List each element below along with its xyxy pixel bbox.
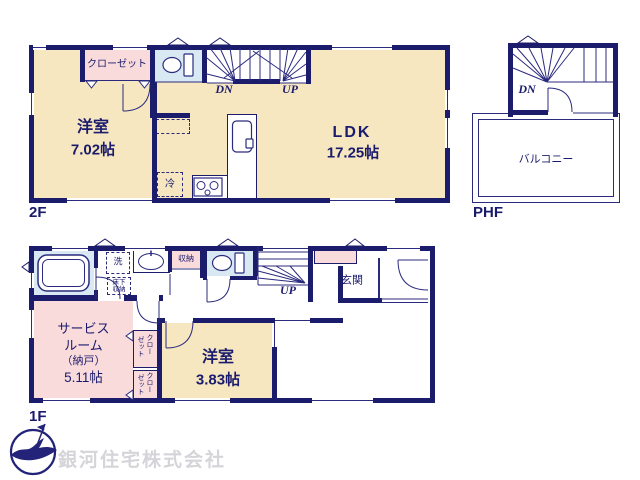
- wall: [508, 110, 548, 115]
- room-label-yoshitsu-1f: 洋室: [202, 350, 234, 366]
- service-room-label: サービス ルーム （納戸） 5.11帖: [34, 320, 133, 386]
- wall: [80, 45, 85, 82]
- window: [275, 318, 310, 323]
- window: [312, 398, 373, 403]
- wall: [168, 246, 172, 272]
- company-logo-icon: [11, 424, 57, 474]
- company-watermark: 銀河住宅株式会社: [58, 445, 226, 472]
- balcony-label: バルコニー: [519, 155, 574, 166]
- closet-lower-label-a: クロー: [146, 372, 153, 393]
- fridge-label: 冷: [165, 180, 175, 190]
- window: [29, 273, 34, 288]
- closet-lower-label-b: ゼット: [137, 374, 144, 395]
- room-toilet-1f: [207, 251, 253, 276]
- wall: [29, 45, 34, 203]
- shoe-cabinet: [314, 249, 357, 264]
- wall: [159, 295, 163, 301]
- stairs-up-1f: UP: [280, 284, 296, 296]
- wall: [508, 43, 618, 48]
- service-line3: （納戸）: [34, 354, 133, 369]
- window: [263, 246, 308, 251]
- wall: [508, 43, 513, 117]
- wall: [338, 298, 382, 303]
- entrance-label: 玄関: [341, 276, 363, 287]
- underfloor-line2: 収納: [107, 286, 131, 293]
- window: [113, 45, 147, 50]
- floor-label-phf: PHF: [473, 205, 503, 220]
- window: [29, 93, 34, 115]
- wall: [203, 276, 207, 280]
- wall: [233, 79, 280, 84]
- window: [175, 398, 230, 403]
- wall: [202, 45, 207, 83]
- room-label-closet-2f: クローゼット: [87, 60, 147, 70]
- underfloor-label: 床下 収納: [107, 279, 131, 293]
- window: [272, 323, 277, 347]
- service-line1: サービス: [34, 320, 133, 337]
- room-bath: [34, 251, 94, 295]
- underfloor-line1: 床下: [107, 279, 131, 286]
- window: [125, 246, 165, 251]
- room-toilet-2f: [155, 50, 202, 82]
- closet-upper-label-b: ゼット: [137, 336, 144, 357]
- wall: [29, 246, 435, 251]
- window: [52, 246, 88, 251]
- room-size-yoshitsu-1f: 3.83帖: [196, 373, 240, 388]
- window: [330, 198, 395, 203]
- floorplan: クローゼット 洋室 7.02帖 LDK 17.25帖 冷 DN UP 2F DN…: [0, 0, 640, 480]
- room-label-yoshitsu-2f: 洋室: [77, 120, 109, 136]
- room-label-ldk: LDK: [333, 125, 372, 141]
- wall: [193, 318, 275, 323]
- vanity: [133, 250, 170, 273]
- service-line4: 5.11帖: [34, 369, 133, 386]
- wall: [29, 295, 98, 301]
- wall: [613, 43, 618, 117]
- window: [43, 398, 90, 403]
- wall: [430, 246, 435, 403]
- kitchen-counter-stove: [192, 175, 228, 199]
- wall: [230, 276, 257, 280]
- stairwell-phf: [508, 43, 618, 117]
- stairwell-2f: [207, 48, 306, 83]
- window: [67, 198, 152, 203]
- wall: [157, 113, 190, 118]
- closet-upper-label-a: クロー: [146, 334, 153, 355]
- wall: [253, 246, 258, 276]
- stairs-up-2f: UP: [282, 83, 298, 95]
- wall: [157, 318, 162, 403]
- wall: [200, 246, 207, 278]
- storage-label: 収納: [178, 255, 194, 263]
- kitchen-counter: [227, 114, 257, 199]
- service-line2: ルーム: [34, 337, 133, 354]
- kitchen-cupboard: [156, 119, 190, 134]
- room-size-ldk: 17.25帖: [327, 146, 380, 161]
- wall: [310, 318, 343, 323]
- stairs-dn-phf: DN: [518, 83, 535, 95]
- window: [445, 118, 450, 148]
- floor-label-2f: 2F: [29, 205, 47, 220]
- window: [33, 45, 46, 50]
- floor-label-1f: 1F: [29, 409, 47, 424]
- room-size-yoshitsu-2f: 7.02帖: [71, 143, 115, 158]
- wall: [124, 295, 137, 301]
- wall: [306, 45, 311, 84]
- window: [387, 246, 420, 251]
- window: [332, 45, 392, 50]
- washer-label: 洗: [113, 258, 122, 267]
- window: [445, 90, 450, 110]
- wall: [308, 246, 313, 302]
- wall: [152, 82, 157, 198]
- wall: [94, 251, 98, 268]
- stairs-dn-2f: DN: [215, 83, 232, 95]
